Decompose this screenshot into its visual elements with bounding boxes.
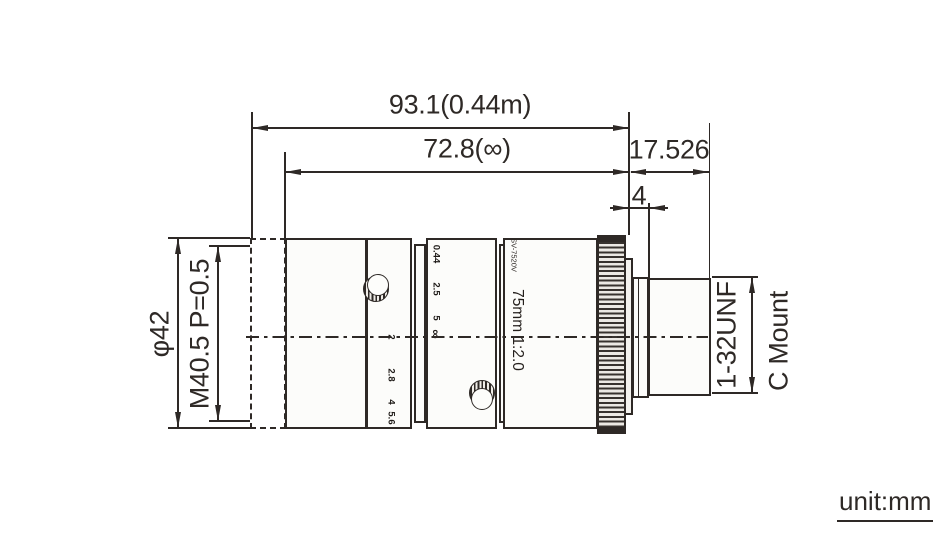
extension-line [209,420,250,422]
extension-line [709,123,711,280]
arrowhead-left [630,169,646,175]
arrowhead-right [613,205,629,211]
rear-barrel: SV-7520V 75mm 1:2.0 [503,238,598,429]
extension-line [284,152,286,238]
arrowhead-down [175,412,181,428]
dim-line [286,171,628,173]
dim-line [177,239,179,427]
dimension-flange-distance-label: 17.526 [629,135,710,166]
lens-dimension-diagram: 2 2.8 4 5.6 8 0.44 2.5 5 ∞ SV-7520V 75mm… [0,0,940,540]
arrowhead-left [649,205,665,211]
extension-line [168,427,250,429]
extension-line [648,203,650,278]
arrowhead-up [749,277,755,293]
dimension-total-length-label: 93.1(0.44m) [389,90,531,121]
extension-line [251,112,253,238]
dimension-filter-thread-label: M40.5 P=0.5 [185,259,216,410]
arrowhead-left [252,125,268,131]
extended-hood-dashed [250,238,286,429]
aperture-thumbscrew [367,274,389,296]
arrowhead-down [749,377,755,393]
aperture-scale-mark: 2.8 [386,368,397,381]
extension-line [168,237,250,239]
front-barrel [285,238,367,429]
unit-label: unit:mm [837,486,933,522]
aperture-scale-mark: 8 [386,427,397,429]
focus-scale-mark: 2.5 [431,282,442,295]
focus-scale-mark: 5 [431,315,442,320]
extension-line [712,392,758,394]
arrowhead-down [215,405,221,421]
aperture-scale-mark: 5.6 [386,411,397,424]
focus-thumbscrew [471,388,493,410]
aperture-ring: 2 2.8 4 5.6 8 [366,238,412,429]
optical-axis-centerline [246,336,708,338]
arrowhead-right [613,125,629,131]
dimension-mount-thread-label: 1-32UNF [712,281,743,388]
dim-line [751,278,753,392]
mount-type-label: C Mount [764,291,795,391]
aperture-scale-mark: 4 [386,399,397,404]
extension-line [712,276,758,278]
dimension-body-length-label: 72.8(∞) [423,134,511,165]
focus-scale-mark: 0.44 [431,245,442,264]
dim-line [217,247,219,420]
dimension-front-diameter-label: φ42 [145,311,176,358]
knurled-ring [597,235,626,434]
arrowhead-up [175,238,181,254]
fixed-ring-front [414,244,426,423]
lens-spec-label: 75mm 1:2.0 [508,289,526,371]
extension-line [209,245,250,247]
dim-line [253,127,628,129]
arrowhead-right [613,169,629,175]
arrowhead-left [285,169,301,175]
arrowhead-up [215,246,221,262]
lens-model-label: SV-7520V [510,238,519,272]
arrowhead-right [693,169,709,175]
